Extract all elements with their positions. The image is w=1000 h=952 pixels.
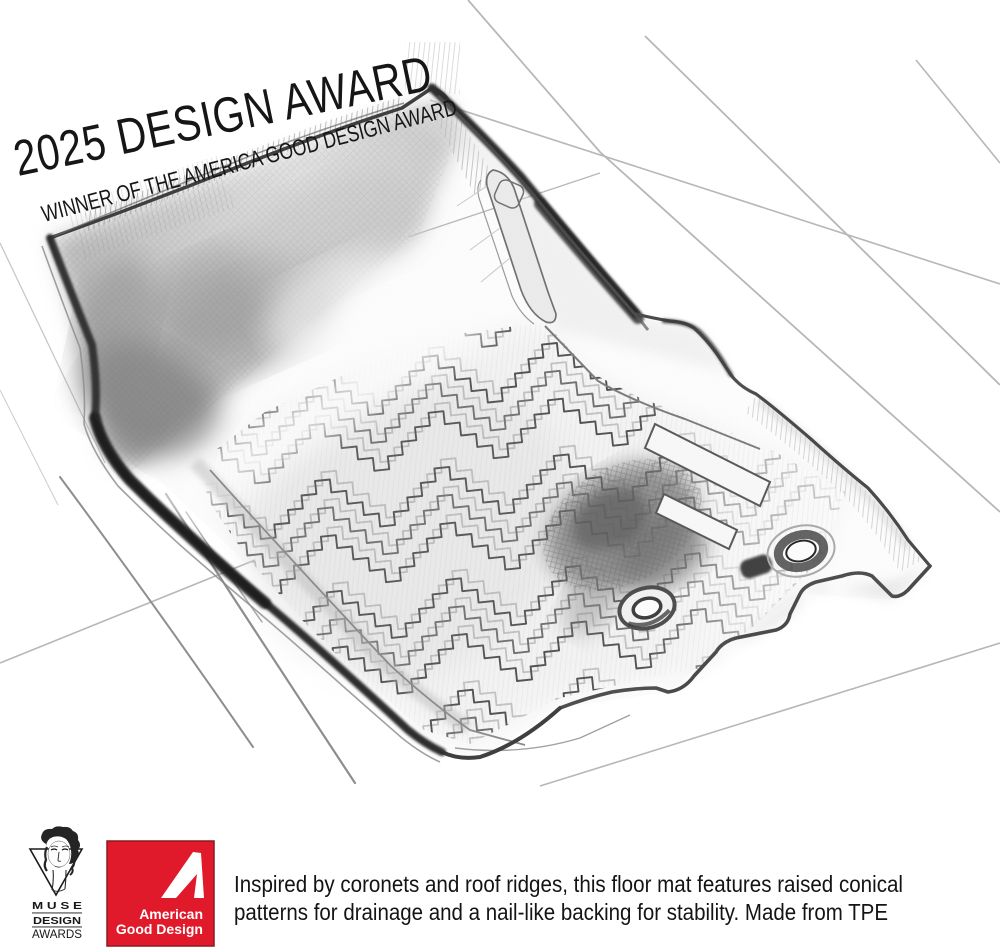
svg-text:AWARDS: AWARDS xyxy=(32,929,82,941)
svg-text:M U S E: M U S E xyxy=(32,900,82,912)
svg-text:Good Design: Good Design xyxy=(116,921,203,937)
svg-text:American: American xyxy=(139,906,203,922)
svg-text:DESIGN: DESIGN xyxy=(33,916,81,927)
svg-text:patterns for drainage and a na: patterns for drainage and a nail-like ba… xyxy=(234,899,888,925)
svg-text:Inspired by coronets and roof: Inspired by coronets and roof ridges, th… xyxy=(234,871,903,897)
